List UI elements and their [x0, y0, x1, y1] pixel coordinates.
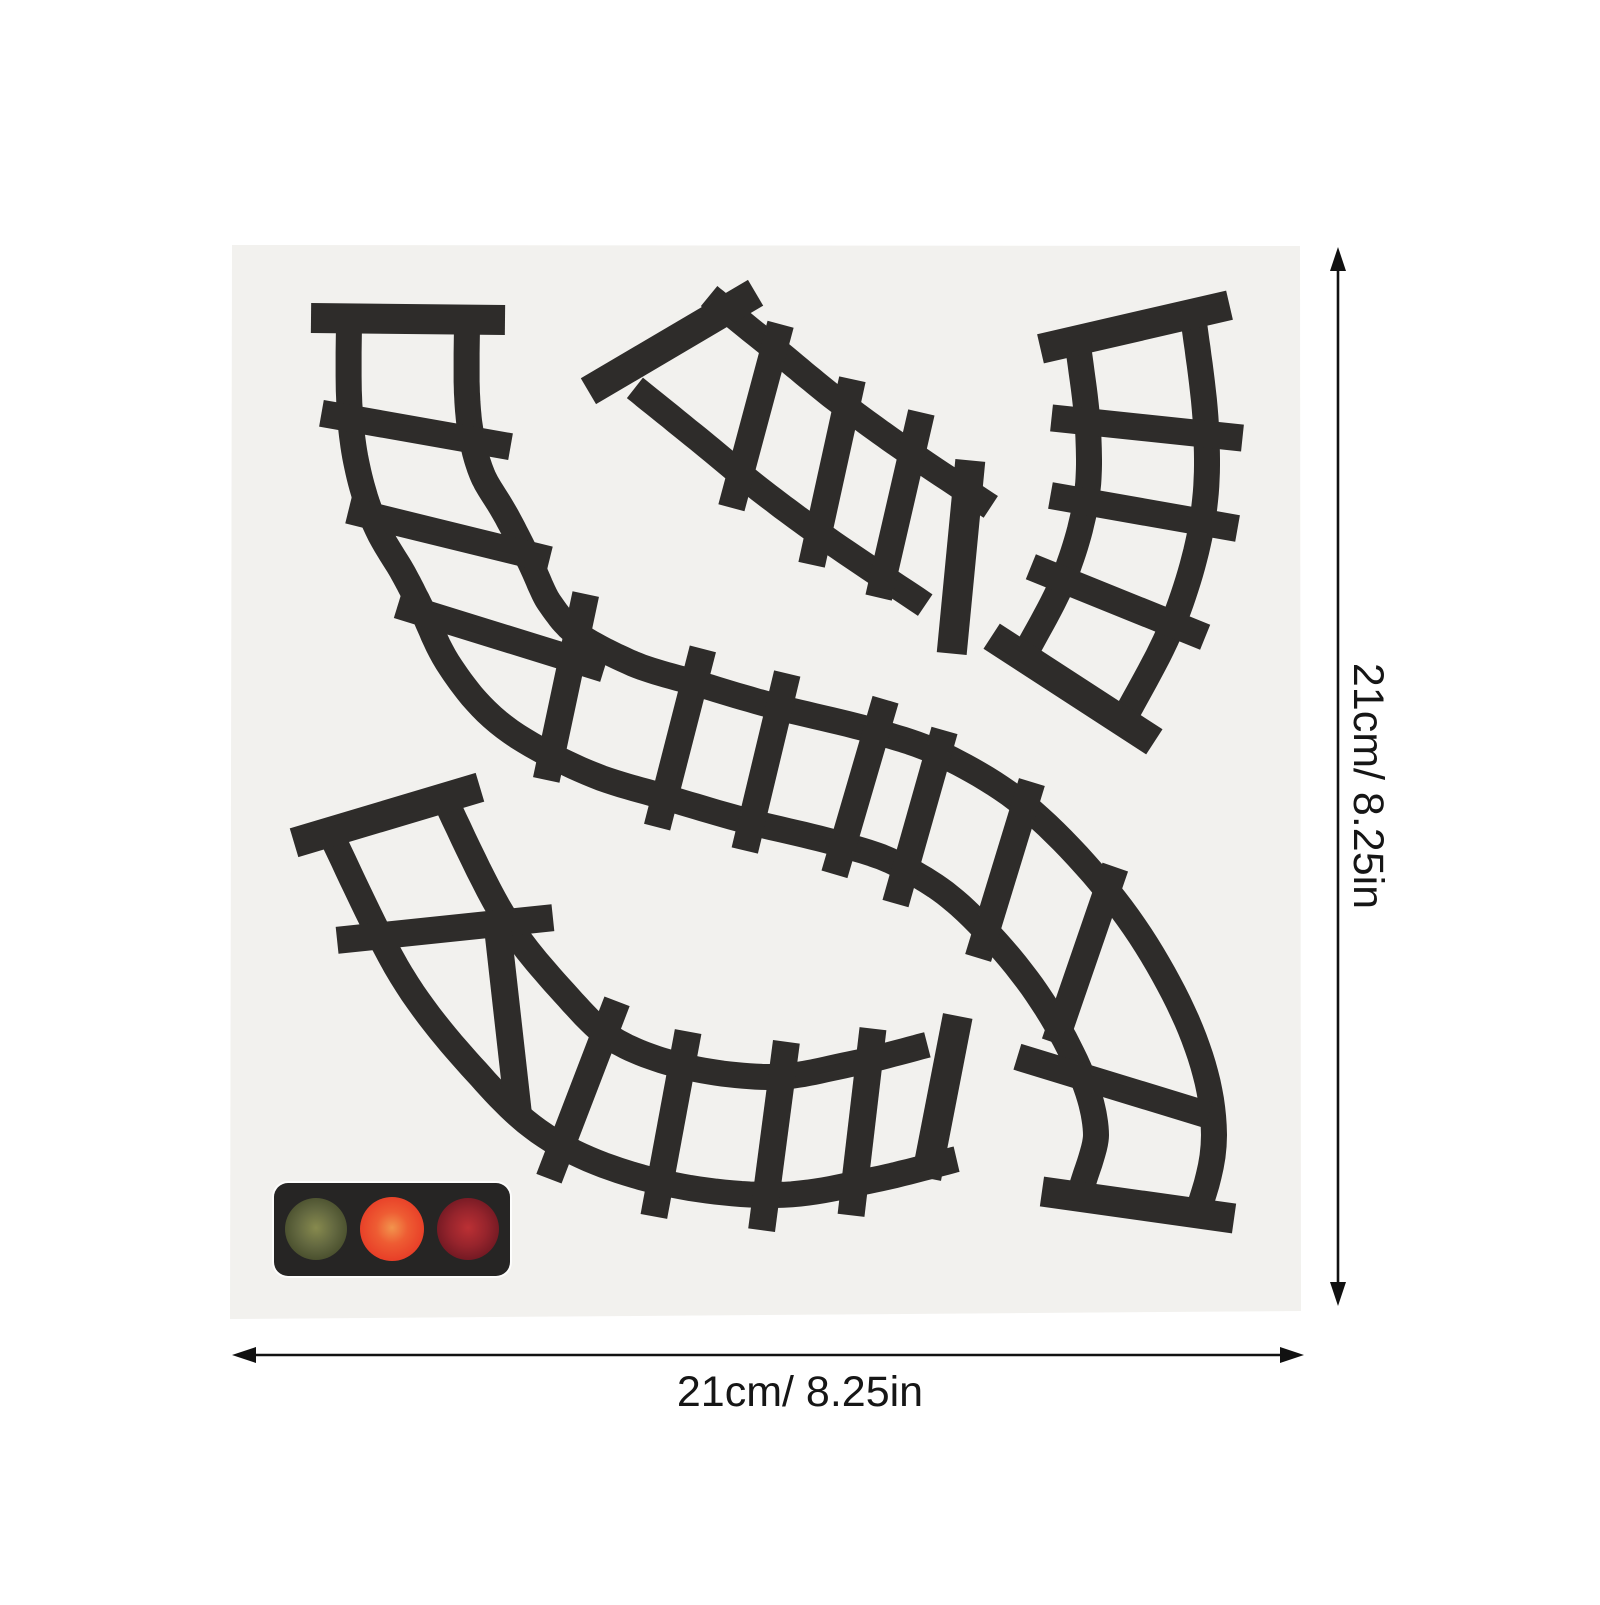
- svg-text:21cm/ 8.25in: 21cm/ 8.25in: [1344, 663, 1392, 909]
- svg-text:21cm/ 8.25in: 21cm/ 8.25in: [677, 1368, 923, 1416]
